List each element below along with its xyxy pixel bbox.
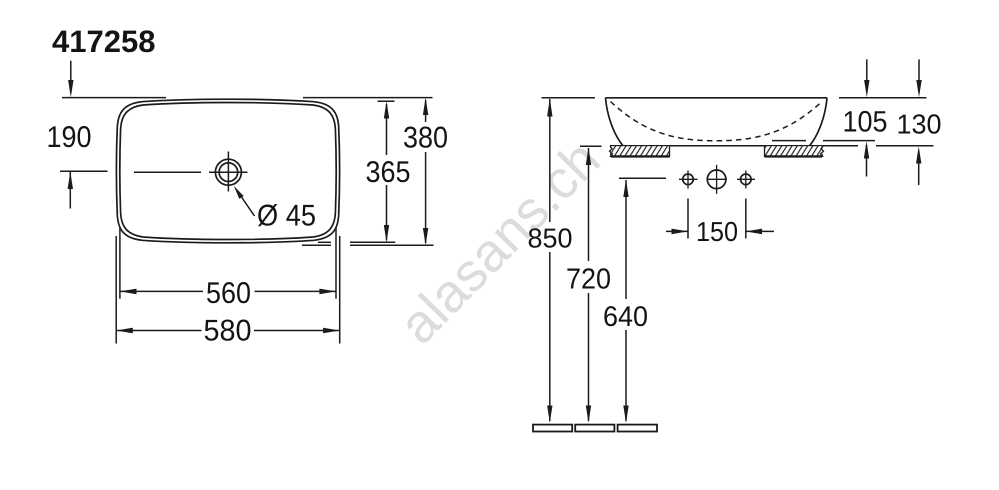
- svg-text:365: 365: [366, 156, 411, 189]
- svg-text:640: 640: [603, 301, 648, 333]
- svg-text:380: 380: [403, 122, 448, 155]
- svg-text:417258: 417258: [52, 24, 155, 59]
- svg-text:150: 150: [696, 216, 738, 247]
- svg-text:720: 720: [566, 263, 611, 295]
- svg-text:850: 850: [528, 222, 573, 253]
- svg-text:190: 190: [47, 121, 92, 154]
- svg-text:Ø 45: Ø 45: [257, 200, 316, 233]
- svg-text:105: 105: [843, 106, 888, 139]
- svg-text:580: 580: [204, 315, 252, 348]
- svg-text:130: 130: [897, 108, 942, 139]
- svg-text:560: 560: [206, 277, 251, 310]
